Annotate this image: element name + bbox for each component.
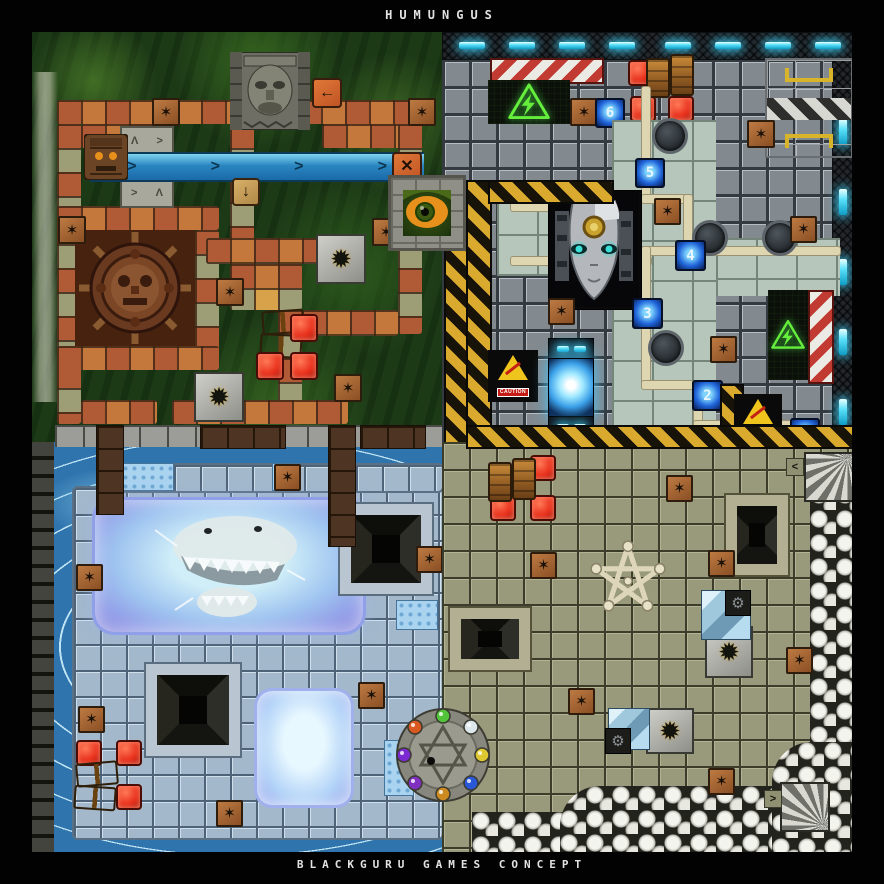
spike-star-icon: ✶: [575, 694, 588, 709]
waypoint-number: 2: [703, 389, 711, 403]
light-bar: [574, 346, 586, 352]
spike-star-icon: ✶: [85, 712, 98, 727]
spike-burst-icon: ✹: [330, 246, 352, 272]
monster-eye-icon: [403, 190, 451, 234]
stone-idol-statue: [230, 52, 310, 130]
rune-glyph: >: [131, 188, 137, 199]
spike-tile[interactable]: ✶: [408, 98, 436, 126]
hazard-stripe-bw: [767, 98, 851, 120]
spike-star-icon: ✶: [715, 774, 728, 789]
danger-tile: [290, 314, 318, 342]
spike-burst-icon: ✹: [659, 718, 681, 744]
crystal-tile: [396, 600, 438, 630]
waypoint-tile-2[interactable]: 2: [692, 380, 723, 411]
spike-star-icon: ✶: [224, 285, 237, 300]
hazard-stripe-red: [808, 290, 834, 384]
spike-tile[interactable]: ✶: [78, 706, 105, 733]
spike-tile[interactable]: ✶: [334, 374, 362, 402]
chest[interactable]: [73, 785, 117, 812]
pit-hole: [737, 506, 777, 564]
spike-tile[interactable]: ✶: [708, 550, 735, 577]
aztec-sun-face: [75, 230, 195, 346]
gem-disc-icon: [395, 707, 491, 803]
flow-arrow-icon: >: [127, 158, 136, 176]
spike-star-icon: ✶: [223, 806, 236, 821]
jungle-path[interactable]: [81, 400, 157, 424]
pit: [144, 662, 242, 758]
wall-light: [609, 42, 635, 49]
pit-hole: [351, 515, 421, 583]
frozen-shark-ice: [92, 497, 366, 635]
spike-tile[interactable]: ✶: [790, 216, 817, 243]
spike-star-icon: ✶: [797, 222, 810, 237]
bone-star-icon: [588, 540, 668, 614]
spike-tile[interactable]: ✶: [152, 98, 180, 126]
wall-light: [765, 42, 791, 49]
manhole-hatch: [652, 118, 688, 154]
hazard-stripe-yellow: [466, 425, 852, 449]
danger-tile: [290, 352, 318, 380]
tiki-head-statue: [84, 134, 128, 180]
barrel[interactable]: [512, 458, 536, 500]
waypoint-tile-3[interactable]: 3: [632, 298, 663, 329]
flow-arrow-icon: >: [294, 158, 303, 176]
caution-label: CAUTION: [497, 388, 529, 397]
danger-tile: [256, 352, 284, 380]
spike-tile[interactable]: ✶: [747, 120, 775, 148]
wall-light: [559, 42, 585, 49]
spike-tile[interactable]: ✶: [654, 198, 681, 225]
eye-window: [388, 175, 466, 251]
wall-light: [839, 259, 847, 285]
waypoint-number: 6: [606, 106, 614, 120]
spike-tile[interactable]: ✶: [358, 682, 385, 709]
spike-star-icon: ✶: [342, 381, 355, 396]
flow-arrow-icon: >: [211, 158, 220, 176]
spiral-staircase[interactable]: [780, 782, 830, 832]
arrow-left-tile[interactable]: ←: [312, 78, 342, 108]
spike-star-icon: ✶: [755, 127, 768, 142]
waypoint-tile-4[interactable]: 4: [675, 240, 706, 271]
spike-star-icon: ✶: [555, 304, 568, 319]
waypoint-number: 5: [646, 166, 654, 180]
flow-arrow-icon: >: [378, 158, 387, 176]
spike-star-icon: ✶: [715, 556, 728, 571]
pad-marking: [785, 68, 833, 82]
spike-trap-panel[interactable]: ✹: [646, 708, 694, 754]
aztec-sun-icon: [75, 230, 195, 346]
eye-window-opening: [403, 190, 451, 236]
wall-light: [839, 399, 847, 425]
waypoint-number: 3: [643, 307, 651, 321]
fuel-barrels[interactable]: [646, 54, 692, 96]
spike-tile[interactable]: ✶: [708, 768, 735, 795]
waypoint-number: 4: [686, 249, 694, 263]
gear-tile[interactable]: ⚙: [605, 728, 631, 754]
barrel[interactable]: [488, 462, 512, 502]
spike-star-icon: ✶: [578, 105, 591, 120]
spike-star-icon: ✶: [416, 105, 429, 120]
spike-tile[interactable]: ✶: [530, 552, 557, 579]
boundary-planks: [360, 425, 426, 449]
spike-star-icon: ✶: [365, 688, 378, 703]
ice-left-wall: [32, 442, 54, 852]
energy-orb[interactable]: [548, 358, 594, 418]
wall-light: [665, 42, 691, 49]
spike-tile[interactable]: ✶: [76, 564, 103, 591]
floor-path: [641, 246, 841, 256]
hazard-stripe-yellow: [488, 180, 614, 204]
warning-triangle-icon: [498, 355, 528, 380]
palm-trunk: [32, 72, 58, 402]
wall-light: [509, 42, 535, 49]
footer-credit: BLACKGURU GAMES CONCEPT: [0, 858, 884, 871]
spike-tile[interactable]: ✶: [710, 336, 737, 363]
spike-star-icon: ✶: [717, 342, 730, 357]
rune-glyph: Λ: [156, 188, 163, 199]
waypoint-tile-5[interactable]: 5: [635, 158, 665, 188]
pit: [448, 606, 532, 672]
quadrant-bone: < > ✹ ✹ ⚙ ⚙: [442, 442, 852, 852]
gear-icon: ⚙: [611, 734, 624, 749]
quadrant-tech: ✶ 6 ✶: [442, 32, 852, 442]
gear-icon: ⚙: [731, 596, 744, 611]
pit-hole: [157, 675, 229, 745]
arrow-right-icon: >: [770, 794, 776, 805]
cross-icon: ✕: [400, 159, 413, 175]
spike-tile[interactable]: ✶: [666, 475, 693, 502]
rune-glyph: >: [157, 136, 163, 147]
lightning-triangle-icon: [770, 318, 806, 352]
wall-light: [815, 42, 841, 49]
light-bar: [557, 346, 569, 352]
electric-sign: [768, 290, 808, 380]
landing-pad: [765, 58, 852, 158]
spike-star-icon: ✶: [66, 223, 79, 238]
spike-star-icon: ✶: [160, 105, 173, 120]
wood-pier: [328, 425, 356, 547]
frozen-shark-icon: [95, 500, 363, 632]
spike-star-icon: ✶: [423, 552, 436, 567]
fuel-barrels[interactable]: [488, 458, 534, 500]
treasure-chests[interactable]: [74, 762, 118, 808]
spike-star-icon: ✶: [537, 558, 550, 573]
pit-hole: [461, 619, 519, 659]
stone-idol-icon: [230, 52, 310, 130]
game-board: Λ > > Λ > > > >: [32, 32, 852, 852]
hazard-stripe-yellow: [466, 180, 492, 446]
boundary-planks: [200, 425, 286, 449]
spike-tile[interactable]: ✶: [216, 278, 244, 306]
arrow-left-icon: <: [792, 462, 798, 473]
caution-sign: CAUTION: [488, 350, 538, 402]
spike-tile[interactable]: ✶: [568, 688, 595, 715]
game-concept-page: HUMUNGUS Λ > >: [0, 0, 884, 884]
danger-tile: [116, 784, 142, 810]
page-title: HUMUNGUS: [0, 8, 884, 22]
spike-burst-icon: ✹: [718, 639, 740, 665]
frozen-pool: [254, 688, 354, 808]
danger-tile: [116, 740, 142, 766]
cyborg-face-icon: [549, 191, 639, 307]
bone-star: [588, 540, 668, 614]
arrow-down-icon: ↓: [242, 184, 250, 200]
rune-glyph: Λ: [131, 136, 138, 147]
rune-tiles: > Λ: [120, 178, 174, 208]
spike-tile[interactable]: ✶: [274, 464, 301, 491]
gear-tile[interactable]: ⚙: [725, 590, 751, 616]
tiki-head-icon: [84, 134, 128, 180]
stairs-arrow-tile[interactable]: >: [764, 790, 782, 808]
spike-tile[interactable]: ✶: [58, 216, 86, 244]
arrow-down-tile[interactable]: ↓: [232, 178, 260, 206]
spike-tile[interactable]: ✶: [786, 647, 813, 674]
spike-star-icon: ✶: [83, 570, 96, 585]
spike-star-icon: ✶: [673, 481, 686, 496]
pad-marking: [785, 134, 833, 148]
wood-pier: [96, 425, 124, 515]
wall-light: [459, 42, 485, 49]
spike-trap-panel[interactable]: ✹: [316, 234, 366, 284]
gem-disc-artifact[interactable]: [395, 707, 491, 803]
spike-star-icon: ✶: [281, 470, 294, 485]
arrow-left-icon: ←: [319, 85, 335, 101]
stairs-arrow-tile[interactable]: <: [786, 458, 804, 476]
spike-star-icon: ✶: [793, 653, 806, 668]
spike-tile[interactable]: ✶: [570, 98, 598, 126]
crystal-tile: [120, 463, 174, 491]
spiral-staircase[interactable]: [804, 452, 852, 502]
cyborg-face-panel: [548, 190, 642, 310]
spike-tile[interactable]: ✶: [416, 546, 443, 573]
electric-sign: [488, 80, 570, 124]
spike-burst-icon: ✹: [208, 384, 230, 410]
chest[interactable]: [75, 760, 119, 788]
jungle-path[interactable]: [57, 346, 219, 370]
warning-triangle-icon: [743, 399, 773, 424]
wall-light: [715, 42, 741, 49]
orb-housing: [548, 338, 594, 360]
barrel[interactable]: [670, 54, 694, 96]
lightning-triangle-icon: [506, 82, 552, 122]
spike-star-icon: ✶: [661, 204, 674, 219]
spike-trap-panel[interactable]: ✹: [194, 372, 244, 422]
wall-light: [839, 329, 847, 355]
quadrant-jungle: Λ > > Λ > > > >: [32, 32, 442, 442]
manhole-hatch: [648, 330, 684, 366]
spike-tile[interactable]: ✶: [216, 800, 243, 827]
wall-light: [839, 189, 847, 215]
spike-tile[interactable]: ✶: [548, 298, 575, 325]
quadrant-ice: ✶ ✶ ✶ ✶ ✶ ✶: [32, 442, 442, 852]
